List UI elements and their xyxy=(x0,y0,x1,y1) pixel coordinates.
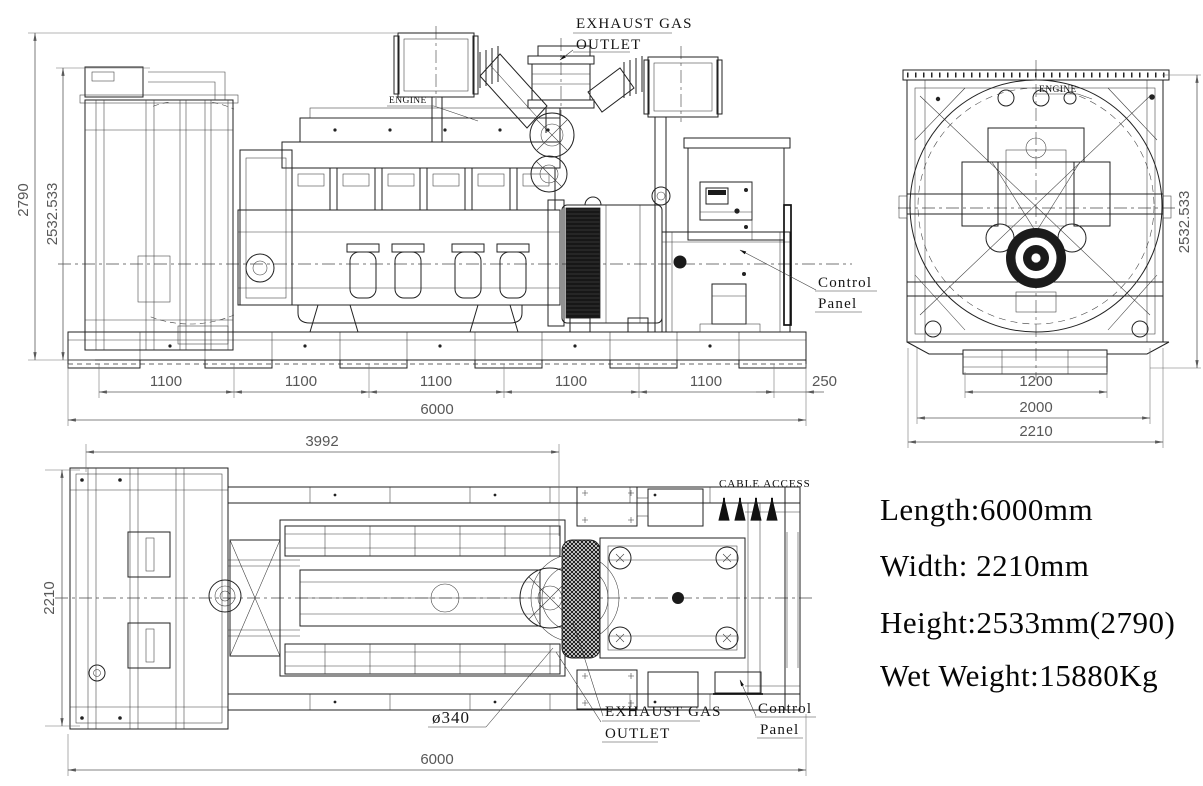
exhaust-gas-label-line1: EXHAUST GAS xyxy=(605,704,722,720)
top-view-exhaust-diameter-label: ø340 xyxy=(428,648,553,727)
dim-overall-width: 2210 xyxy=(1019,423,1052,440)
end-view: ENGINE 2532.533 1200 2000 2210 xyxy=(898,60,1201,448)
dim-segment-2: 1100 xyxy=(285,373,317,390)
dim-segment-4: 1100 xyxy=(555,373,587,390)
dim-base-mid: 2000 xyxy=(1019,399,1052,416)
control-panel-label-line1: Control xyxy=(818,275,872,291)
cable-access-label: CABLE ACCESS xyxy=(719,478,811,490)
top-view-radiator xyxy=(70,468,228,729)
side-view-control-panel-label: Control Panel xyxy=(740,250,877,312)
end-view-base xyxy=(907,342,1169,374)
dim-height-frame: 2532.533 xyxy=(44,183,61,246)
dim-base-inner: 1200 xyxy=(1019,373,1052,390)
side-view-dimensions: 2790 2532.533 1100 1100 1100 1100 1100 2… xyxy=(15,33,837,426)
exhaust-diameter-label: ø340 xyxy=(432,708,470,727)
side-view-alternator xyxy=(548,197,662,332)
top-view: CABLE ACCESS Control Panel EXHAUST GAS O… xyxy=(41,433,816,776)
dim-total-length: 6000 xyxy=(420,401,453,418)
dim-front-length: 3992 xyxy=(305,433,338,450)
dim-segment-1: 1100 xyxy=(150,373,182,390)
side-view-exhaust-outlet-label: EXHAUST GAS OUTLET xyxy=(560,16,693,60)
spec-width: Width: 2210mm xyxy=(880,548,1089,584)
spec-length: Length:6000mm xyxy=(880,492,1093,528)
exhaust-gas-label-line1: EXHAUST GAS xyxy=(576,16,693,32)
dim-segment-3: 1100 xyxy=(420,373,452,390)
dim-segment-5: 1100 xyxy=(690,373,722,390)
dim-end-offset: 250 xyxy=(812,373,837,390)
dim-overall-width: 2210 xyxy=(41,581,58,614)
control-panel-label-line1: Control xyxy=(758,701,812,717)
control-panel-label-line2: Panel xyxy=(760,722,799,738)
side-view-rear-housing xyxy=(662,232,790,332)
engine-label: ENGINE xyxy=(1039,85,1077,95)
dim-total-length: 6000 xyxy=(420,751,453,768)
top-view-engine xyxy=(209,520,619,676)
dim-height-frame: 2532.533 xyxy=(1176,191,1193,254)
exhaust-gas-label-line2: OUTLET xyxy=(576,37,642,53)
engine-label: ENGINE xyxy=(389,96,427,106)
spec-wet-weight: Wet Weight:15880Kg xyxy=(880,658,1158,694)
exhaust-gas-label-line2: OUTLET xyxy=(605,726,671,742)
drawing-sheet: EXHAUST GAS OUTLET ENGINE xyxy=(0,0,1203,786)
control-panel-label-line2: Panel xyxy=(818,296,857,312)
top-view-control-panel: Control Panel xyxy=(713,672,816,738)
dim-height-overall: 2790 xyxy=(15,183,32,216)
top-view-alternator xyxy=(600,503,800,694)
top-view-dimensions: 3992 2210 6000 xyxy=(41,433,806,776)
side-view-radiator xyxy=(78,67,302,350)
side-view-engine xyxy=(238,108,574,332)
spec-height: Height:2533mm(2790) xyxy=(880,605,1175,641)
side-view: EXHAUST GAS OUTLET ENGINE xyxy=(15,16,877,426)
